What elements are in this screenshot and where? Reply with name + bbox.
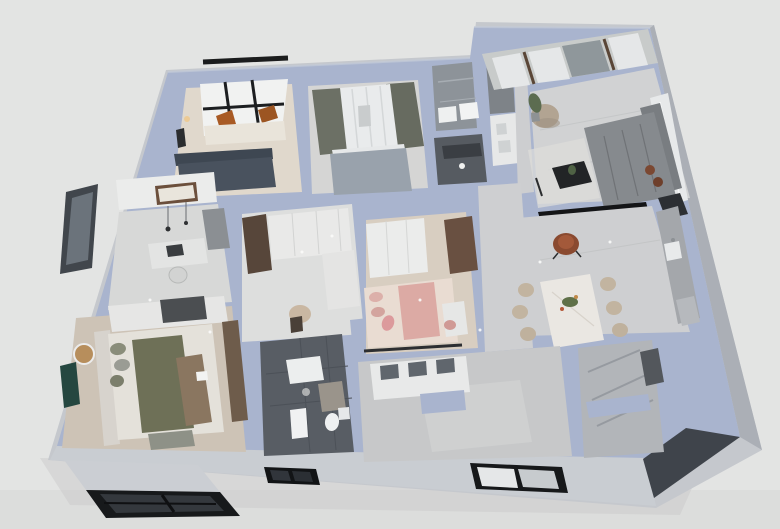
bath1-wc-floor — [434, 134, 487, 185]
dining-chair-3 — [520, 327, 536, 341]
facade-window-1-glass-left — [270, 470, 291, 481]
sofa-cushion-1 — [645, 165, 655, 175]
guest-radiator — [358, 105, 371, 127]
bath2-vanity — [318, 381, 346, 412]
closet-chair-base — [290, 316, 303, 333]
ceiling-light-1 — [301, 251, 304, 254]
ceiling-light-6 — [479, 329, 482, 332]
kitchen-faucet — [671, 238, 675, 242]
coffee-table-plant — [568, 165, 576, 175]
balcony-edge-highlight — [474, 27, 650, 28]
ceiling-light-2 — [331, 235, 334, 238]
entry-display-cabinet — [490, 113, 519, 166]
bath2-tub — [286, 356, 324, 384]
corridor-closet-slot-3 — [436, 358, 455, 374]
living-plant-pot — [531, 112, 540, 122]
corridor-wall-stub — [420, 390, 466, 414]
guest-bed — [330, 148, 412, 195]
master-round-mirror — [74, 344, 94, 364]
kids-desk — [442, 301, 468, 337]
corridor-closet-slot-2 — [408, 361, 427, 377]
floorplan-svg — [0, 0, 780, 529]
study-laptop — [166, 244, 184, 257]
dining-flower-1 — [560, 307, 564, 311]
dining-chair-1 — [518, 283, 534, 297]
dining-flower-2 — [574, 295, 578, 299]
bath1-fixture-vanity — [459, 102, 479, 120]
bath2-toilet-tank — [338, 407, 350, 420]
sofa-cushion-2 — [653, 177, 663, 187]
bath1-fixture-tub — [438, 106, 457, 123]
kids-blanket — [398, 282, 440, 340]
bath2-light-glow — [302, 388, 310, 396]
entry-shelf-box-2 — [498, 140, 511, 153]
bath2-shower-mat — [290, 408, 308, 439]
study-pendant-bulb-2 — [184, 221, 188, 225]
dining-chair-2 — [512, 305, 528, 319]
dining-chair-6 — [612, 323, 628, 337]
lounge-wall-lamp — [184, 116, 190, 122]
ceiling-light-8 — [149, 299, 152, 302]
bath1-ceiling-light — [459, 163, 465, 169]
master-wardrobe-glass — [160, 296, 207, 323]
facade-window-2-glass-lit — [477, 467, 518, 488]
ceiling-light-5 — [609, 241, 612, 244]
bay-window-large-mullion-h — [104, 503, 216, 504]
corridor-closet-slot-1 — [380, 364, 399, 380]
study-pendant-bulb-1 — [166, 227, 171, 232]
kids-wardrobe — [366, 218, 428, 278]
study-chair — [169, 267, 187, 283]
ceiling-light-7 — [209, 331, 212, 334]
floorplan-render — [0, 0, 780, 529]
ceiling-light-4 — [539, 261, 542, 264]
closet-wardrobe-right — [322, 250, 360, 310]
kids-chair — [444, 320, 456, 330]
dining-chair-5 — [606, 301, 622, 315]
facade-window-1-glass-right — [292, 471, 313, 482]
entry-shelf-box-1 — [496, 123, 507, 135]
dining-chair-4 — [600, 277, 616, 291]
ceiling-light-3 — [419, 299, 422, 302]
kids-door — [444, 216, 478, 274]
master-breakfast-tray — [196, 371, 208, 381]
lounge-chair-seat — [558, 235, 574, 249]
kitchen-sink — [664, 241, 682, 261]
facade-window-2-glass — [518, 469, 559, 489]
